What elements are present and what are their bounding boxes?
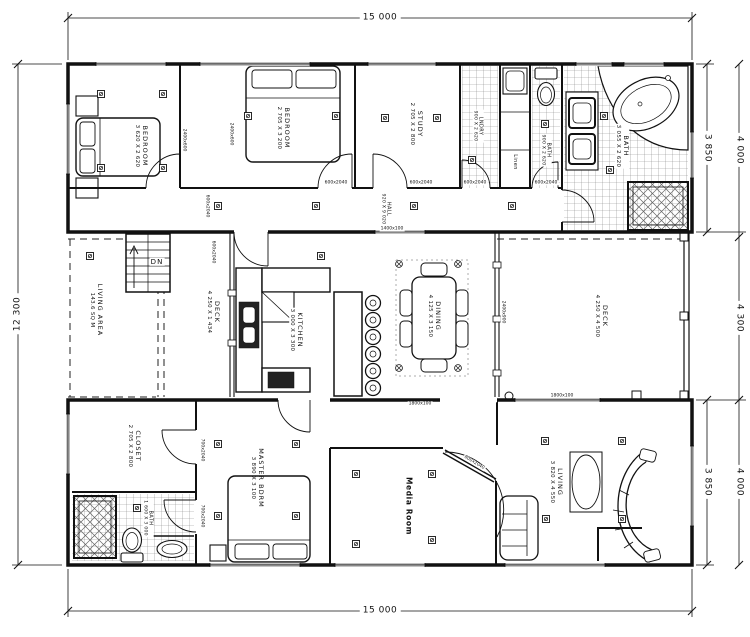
bed-bedroom2 [246, 66, 340, 162]
room-label-kitchen: KITCHEN3 000 X 3 300 [289, 308, 303, 353]
floor-plan: BEDROOM3 620 X 2 620 BEDROOM2 705 X 3 20… [0, 0, 750, 637]
room-label-media: Media Room [405, 477, 414, 535]
room-label-bathroom: BATH3 055 X 2 620 [615, 124, 629, 169]
size-tag: 700x2040 [199, 504, 204, 529]
size-tag: 600x2040 [210, 240, 215, 265]
dim-right-mid-outer: 4 300 [734, 301, 745, 335]
plan-linework [0, 0, 750, 637]
range-cooktop [268, 372, 294, 388]
stairs-dn-label: DN [150, 258, 165, 266]
doors [146, 154, 594, 537]
sofa-left [500, 496, 538, 560]
door-closet [162, 430, 196, 464]
ensuite-shower [74, 496, 116, 558]
room-label-deck-large: DECK4 250 X 4 500 [594, 295, 608, 338]
room-label-ensuite: BATH1 600 X 3 000 [142, 499, 153, 537]
bar-stools [366, 296, 381, 396]
size-tag: 2400x900 [500, 300, 505, 325]
size-tag: 1800x100 [550, 393, 575, 398]
dim-bottom: 15 000 [360, 606, 401, 617]
room-label-study: STUDY2 705 X 2 800 [409, 103, 423, 146]
dim-right-bottom-inner: 3 850 [702, 465, 713, 499]
size-tag: 600x2040 [463, 180, 488, 185]
dim-left: 12 300 [13, 294, 24, 335]
dim-right-top-outer: 4 000 [734, 133, 745, 167]
dim-right-bottom-outer: 4 000 [734, 465, 745, 499]
door-kitchen [234, 232, 268, 266]
room-label-bedroom1: BEDROOM3 620 X 2 620 [134, 125, 148, 168]
size-tag: 600x2040 [409, 180, 434, 185]
room-label-laundry: LNDRY900 X 2 620 [472, 110, 483, 143]
room-label-living-area: LIVING AREA143.6 SQ M [89, 284, 103, 336]
room-label-dining: DINING4 125 X 3 150 [427, 294, 441, 339]
door-study [373, 154, 407, 188]
dim-top: 15 000 [360, 13, 401, 24]
shower-main-bath [628, 182, 688, 230]
media-diagonal-door-wall [443, 450, 496, 482]
door-master [278, 400, 310, 432]
room-label-bedroom2: BEDROOM2 705 X 3 200 [276, 107, 290, 150]
dim-right-top-inner: 3 850 [702, 131, 713, 165]
island-bench [334, 292, 362, 396]
size-tag: 600x2040 [534, 180, 559, 185]
kitchen-benches [236, 268, 330, 392]
room-label-linen: Linen [512, 153, 518, 171]
room-label-hall: HALL920 X 9 020 [380, 194, 391, 225]
room-label-deck-small: DECK4 250 X 1 434 [206, 290, 220, 335]
sofa-right [613, 448, 661, 563]
room-label-living: LIVING3 820 X 4 550 [549, 461, 563, 504]
vanity-basins [566, 92, 598, 170]
living-furniture [500, 448, 661, 563]
size-tag: 2400x600 [181, 128, 186, 153]
size-tag: 700x2040 [199, 438, 204, 463]
living-nook-wall [598, 528, 642, 561]
size-tag: 1400x100 [380, 226, 405, 231]
size-tag: 1800x100 [408, 401, 433, 406]
size-tag: 600x2040 [324, 180, 349, 185]
room-label-closet: CLOSET2 705 X 2 800 [127, 425, 141, 468]
room-label-wc: BATH900 X 2 620 [540, 134, 551, 167]
size-tag: 2400x600 [228, 122, 233, 147]
room-label-master: MASTER BDRM3 890 X 3 100 [250, 448, 264, 507]
size-tag: 600x2040 [204, 194, 209, 219]
